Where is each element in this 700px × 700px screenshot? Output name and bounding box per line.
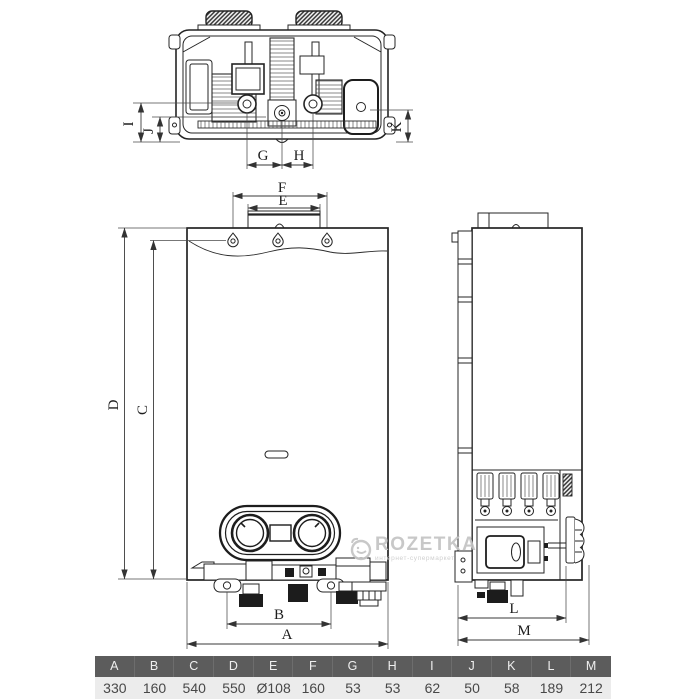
value-B: 160 bbox=[135, 677, 175, 699]
value-D: 550 bbox=[214, 677, 254, 699]
bottom-connections-front bbox=[192, 558, 386, 607]
col-header-J: J bbox=[452, 656, 492, 677]
col-header-M: M bbox=[571, 656, 611, 677]
knob-left-top bbox=[238, 95, 256, 113]
value-A: 330 bbox=[95, 677, 135, 699]
product-dimensions-image: I J K G H F E bbox=[0, 0, 700, 700]
dim-label-C: C bbox=[135, 405, 151, 415]
technical-drawing: I J K G H F E bbox=[0, 0, 700, 652]
dim-label-M: M bbox=[517, 623, 530, 639]
dimensions-table-values: 330 160 540 550 Ø108 160 53 53 62 50 58 … bbox=[95, 677, 611, 699]
value-L: 189 bbox=[532, 677, 572, 699]
col-header-K: K bbox=[492, 656, 532, 677]
knob-right-top bbox=[304, 95, 322, 113]
front-view: F E bbox=[106, 180, 388, 649]
dim-label-G: G bbox=[258, 148, 269, 164]
dim-label-J: J bbox=[141, 128, 157, 134]
value-C: 540 bbox=[174, 677, 214, 699]
value-G: 53 bbox=[333, 677, 373, 699]
value-K: 58 bbox=[492, 677, 532, 699]
dim-label-D: D bbox=[106, 399, 122, 410]
value-H: 53 bbox=[373, 677, 413, 699]
col-header-H: H bbox=[373, 656, 413, 677]
col-header-G: G bbox=[333, 656, 373, 677]
dim-label-L: L bbox=[509, 601, 518, 617]
side-view: L M bbox=[452, 213, 589, 646]
control-panel bbox=[220, 506, 340, 560]
col-header-C: C bbox=[174, 656, 214, 677]
col-header-A: A bbox=[95, 656, 135, 677]
display-window bbox=[270, 525, 291, 541]
col-header-F: F bbox=[293, 656, 333, 677]
dimensions-table: A B C D E F G H I J K L M 330 160 540 55… bbox=[95, 656, 611, 699]
dim-label-K: K bbox=[389, 121, 405, 132]
col-header-I: I bbox=[413, 656, 453, 677]
col-header-B: B bbox=[135, 656, 175, 677]
col-header-E: E bbox=[254, 656, 294, 677]
dim-label-H: H bbox=[294, 148, 305, 164]
dim-label-A: A bbox=[282, 627, 293, 643]
value-E: Ø108 bbox=[254, 677, 294, 699]
dimensions-table-header: A B C D E F G H I J K L M bbox=[95, 656, 611, 677]
value-F: 160 bbox=[293, 677, 333, 699]
bottom-connections-side bbox=[475, 580, 523, 603]
col-header-L: L bbox=[532, 656, 572, 677]
value-I: 62 bbox=[413, 677, 453, 699]
water-knob bbox=[294, 515, 330, 551]
value-M: 212 bbox=[571, 677, 611, 699]
knob-side-profile bbox=[566, 517, 575, 563]
back-mounting-strip bbox=[452, 231, 472, 582]
dim-label-I: I bbox=[121, 122, 137, 127]
dim-label-B: B bbox=[274, 607, 284, 623]
gas-knob bbox=[232, 515, 268, 551]
vent-slot bbox=[265, 451, 288, 458]
dim-label-E: E bbox=[278, 193, 287, 209]
top-view: I J K G H bbox=[121, 11, 413, 169]
value-J: 50 bbox=[452, 677, 492, 699]
col-header-D: D bbox=[214, 656, 254, 677]
